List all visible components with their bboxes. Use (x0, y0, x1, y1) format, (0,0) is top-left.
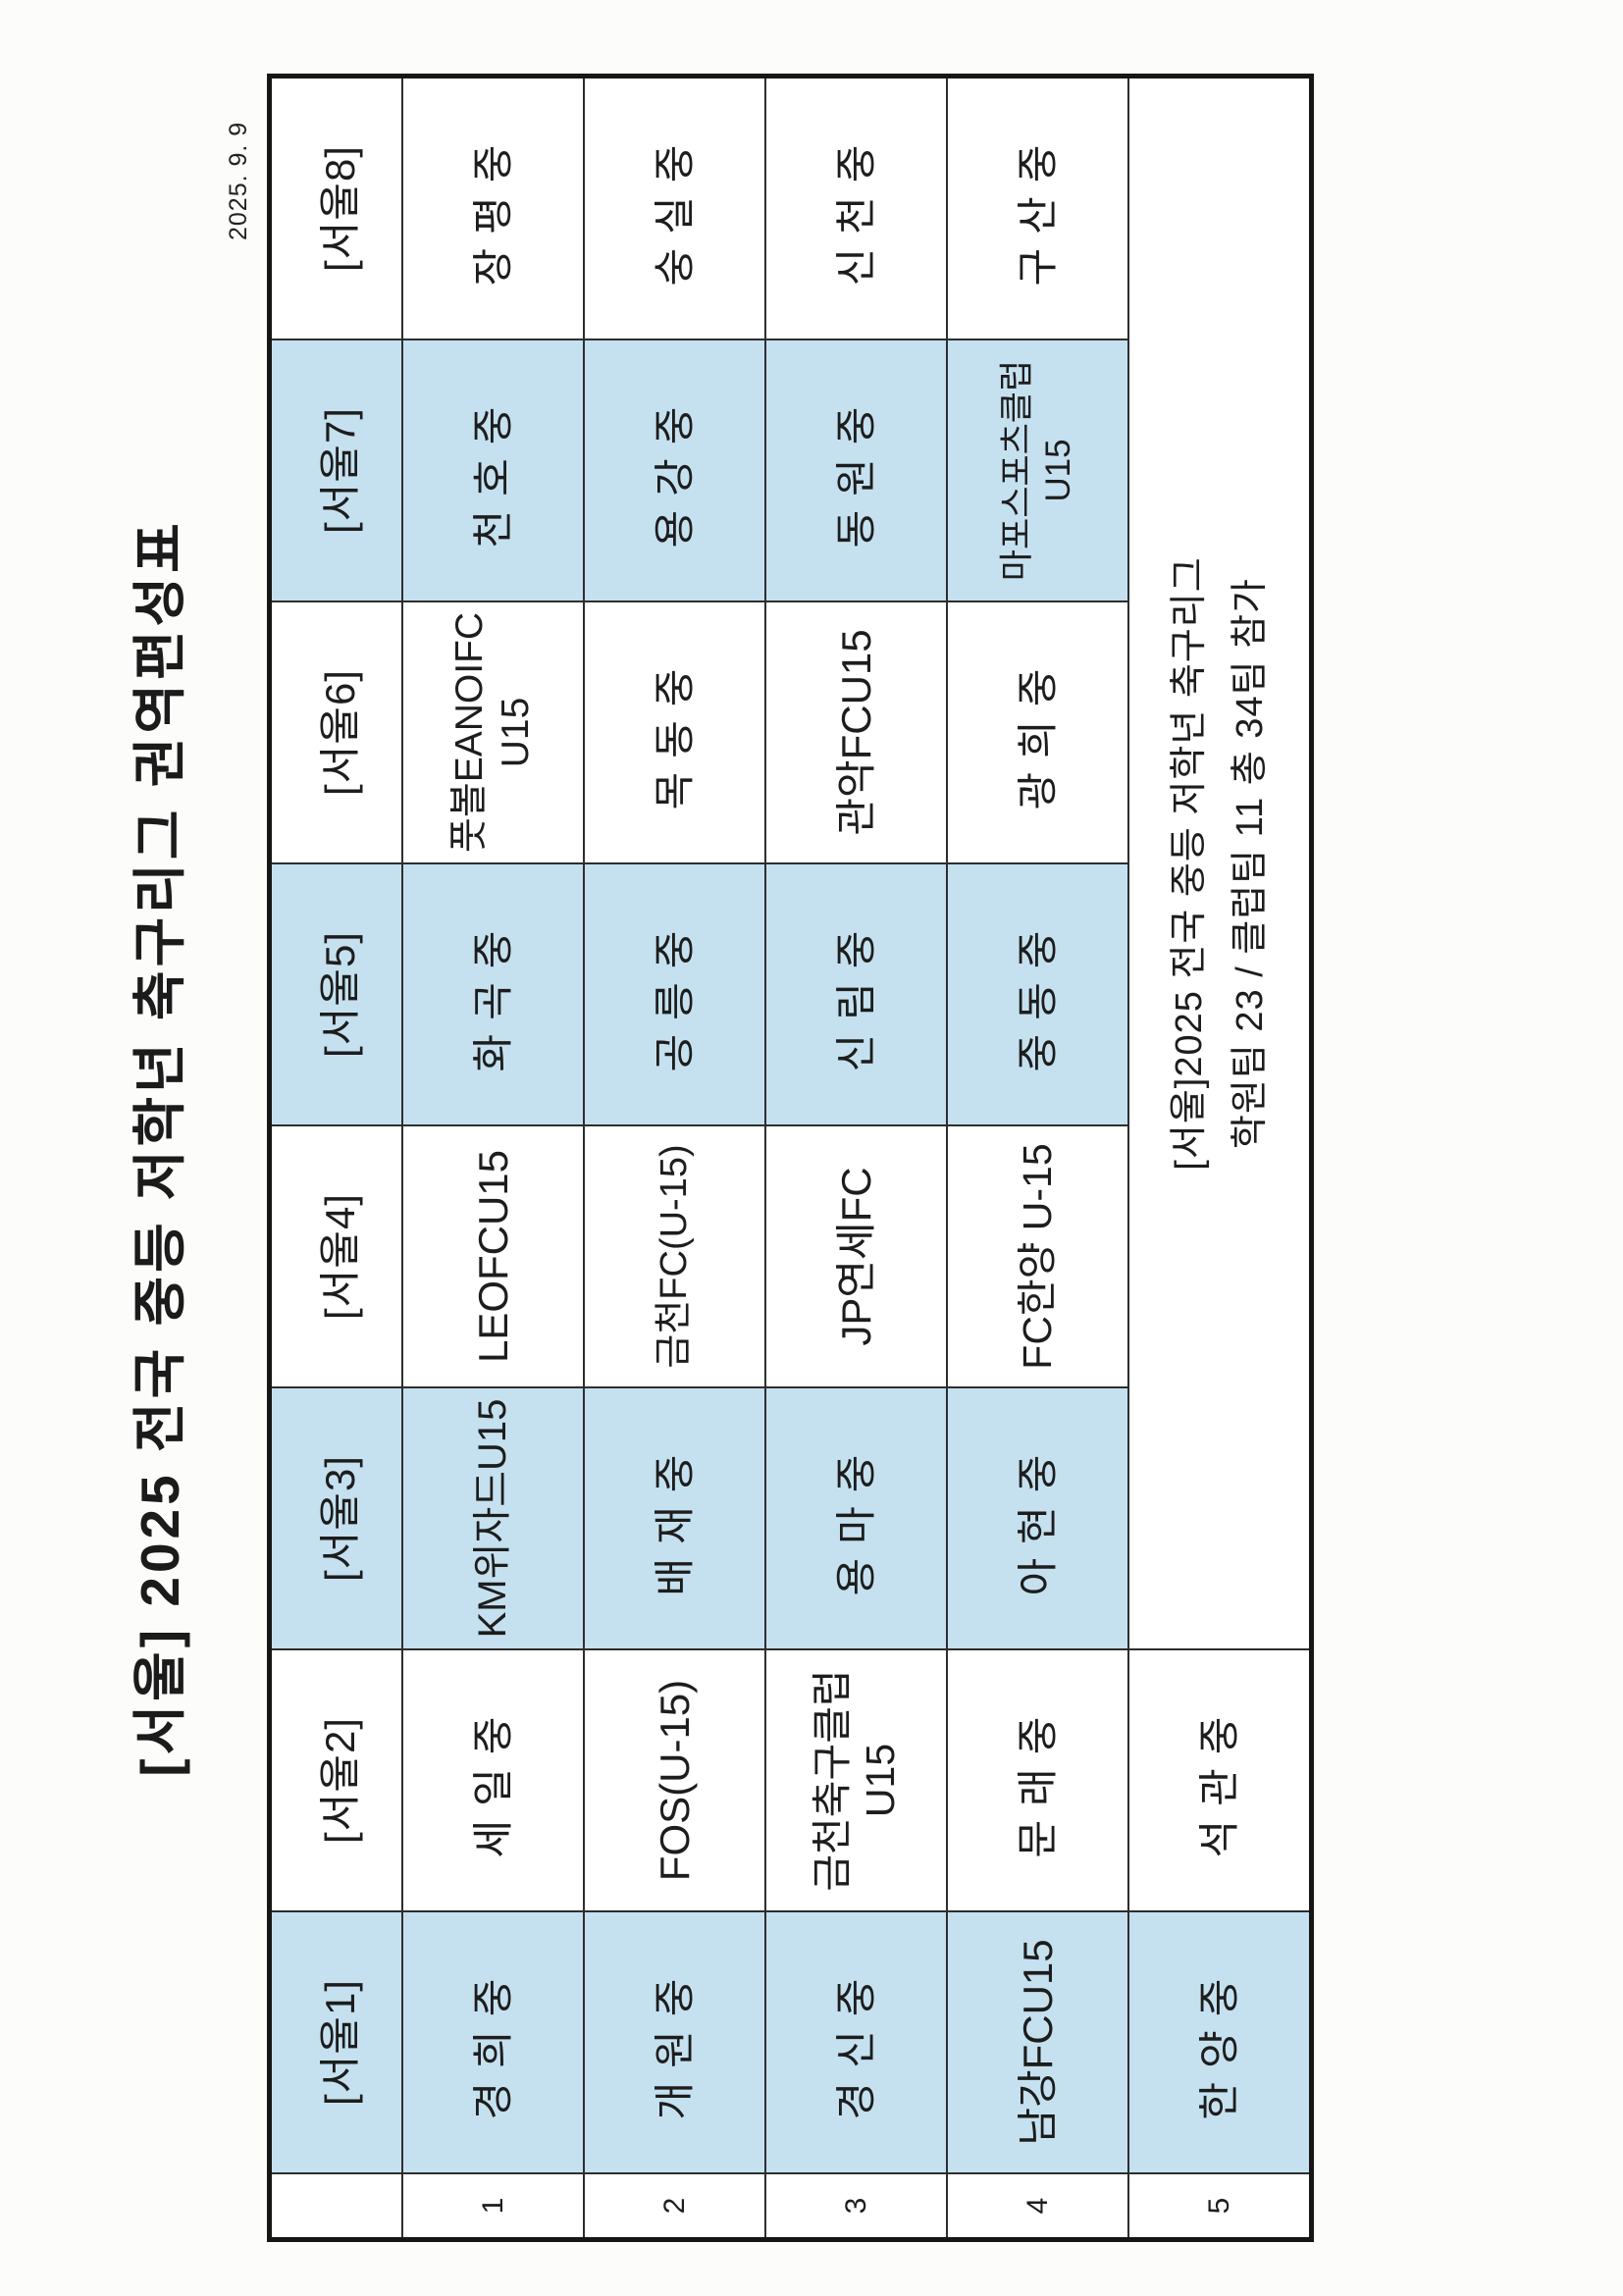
group-header-1: [서울1] (272, 1912, 401, 2172)
team-cell: 중동중 (948, 864, 1127, 1124)
cell-text: 남강FCU15 (1014, 1939, 1063, 2145)
team-cell: 동원중 (766, 340, 946, 600)
team-cell: 광희중 (948, 602, 1127, 862)
cell-text: U15 (494, 698, 539, 768)
cell-text: U15 (857, 1744, 904, 1817)
cell-text: 한양중 (1195, 1965, 1244, 2120)
team-cell: 금천FC(U-15) (585, 1126, 764, 1386)
team-cell: FOS(U-15) (585, 1650, 764, 1910)
cell-text: LEOFCU15 (469, 1150, 518, 1363)
team-cell: 숭실중 (585, 78, 764, 339)
team-cell: 구산중 (948, 78, 1127, 339)
team-cell: 석관중 (1129, 1650, 1309, 1910)
cell-text: 천호중 (469, 393, 518, 548)
group-header-5: [서울5] (272, 864, 401, 1124)
team-cell: 세일중 (403, 1650, 583, 1910)
cell-text: 금천축구클럽 (809, 1669, 856, 1891)
team-cell: 마포스포츠클럽U15 (948, 340, 1127, 600)
team-cell: 신천중 (766, 78, 946, 339)
team-cell: 장평중 (403, 78, 583, 339)
cell-text: 신림중 (832, 917, 881, 1072)
cell-text: 목동중 (651, 655, 700, 810)
team-cell: 경희중 (403, 1912, 583, 2172)
note-text-line: [서울]2025 전국 중등 저학년 축구리그 (1159, 556, 1220, 1170)
cell-text: 마포스포츠클럽 (997, 360, 1037, 581)
cell-text: 경신중 (832, 1965, 881, 2120)
page-title: [서울] 2025 전국 중등 저학년 축구리그 권역편성표 (116, 0, 194, 2296)
team-cell: 개원중 (585, 1912, 764, 2172)
cell-text: 석관중 (1195, 1703, 1244, 1858)
team-cell: 금천축구클럽U15 (766, 1650, 946, 1910)
team-cell: 배재중 (585, 1388, 764, 1648)
cell-text: 경희중 (469, 1965, 518, 2120)
group-header-8: [서울8] (272, 78, 401, 339)
row-number-cell: 2 (585, 2174, 764, 2237)
team-cell: 아현중 (948, 1388, 1127, 1648)
cell-text: 용마중 (832, 1441, 881, 1596)
team-cell: 목동중 (585, 602, 764, 862)
corner-cell (272, 2174, 401, 2237)
team-cell: 관악FCU15 (766, 602, 946, 862)
team-cell: 용마중 (766, 1388, 946, 1648)
team-cell: 한양중 (1129, 1912, 1309, 2172)
group-header-7: [서울7] (272, 340, 401, 600)
group-header-2: [서울2] (272, 1650, 401, 1910)
cell-text: 화곡중 (469, 917, 518, 1072)
group-header-4: [서울4] (272, 1126, 401, 1386)
team-cell: JP연세FC (766, 1126, 946, 1386)
team-cell: 경신중 (766, 1912, 946, 2172)
cell-text: 중동중 (1014, 917, 1063, 1072)
team-cell: 문래중 (948, 1650, 1127, 1910)
team-cell: 남강FCU15 (948, 1912, 1127, 2172)
cell-text: 용강중 (651, 393, 700, 548)
team-cell: 풋볼EANOIFCU15 (403, 602, 583, 862)
date-label: 2025. 9. 9 (225, 25, 253, 240)
team-cell: 공릉중 (585, 864, 764, 1124)
cell-text: 개원중 (651, 1965, 700, 2120)
cell-text: 장평중 (469, 131, 518, 287)
note-text-line: 학원팀 23 / 클럽팀 11 총 34팀 참가 (1220, 578, 1281, 1149)
cell-text: 공릉중 (651, 917, 700, 1072)
cell-text: 신천중 (832, 131, 881, 287)
row-number-cell: 4 (948, 2174, 1127, 2237)
cell-text: FOS(U-15) (651, 1680, 700, 1881)
team-cell: KM위자드U15 (403, 1388, 583, 1648)
row-number-cell: 5 (1129, 2174, 1309, 2237)
cell-text: FC한양 U-15 (1014, 1143, 1061, 1369)
team-cell: LEOFCU15 (403, 1126, 583, 1386)
scanned-document-page: [서울] 2025 전국 중등 저학년 축구리그 권역편성표 2025. 9. … (0, 0, 1623, 2296)
cell-text: 아현중 (1014, 1441, 1063, 1596)
cell-text: 배재중 (651, 1441, 700, 1596)
note-cell: [서울]2025 전국 중등 저학년 축구리그학원팀 23 / 클럽팀 11 총… (1129, 78, 1309, 1648)
team-cell: 신림중 (766, 864, 946, 1124)
cell-text: 숭실중 (651, 131, 700, 287)
rotated-landscape-sheet: [서울] 2025 전국 중등 저학년 축구리그 권역편성표 2025. 9. … (0, 0, 1623, 2296)
cell-text: 구산중 (1014, 131, 1063, 287)
cell-text: 광희중 (1014, 655, 1063, 810)
group-header-3: [서울3] (272, 1388, 401, 1648)
league-assignment-table: [서울1]경희중개원중경신중남강FCU15한양중[서울2]세일중FOS(U-15… (267, 74, 1314, 2242)
cell-text: U15 (1038, 439, 1078, 501)
team-cell: 용강중 (585, 340, 764, 600)
team-cell: 천호중 (403, 340, 583, 600)
cell-text: 관악FCU15 (832, 629, 881, 835)
cell-text: 풋볼EANOIFC (447, 612, 493, 853)
row-number-cell: 3 (766, 2174, 946, 2237)
group-header-6: [서울6] (272, 602, 401, 862)
cell-text: 금천FC(U-15) (653, 1144, 697, 1368)
cell-text: KM위자드U15 (470, 1399, 516, 1639)
cell-text: 문래중 (1014, 1703, 1063, 1858)
team-cell: FC한양 U-15 (948, 1126, 1127, 1386)
cell-text: 동원중 (832, 393, 881, 548)
row-number-cell: 1 (403, 2174, 583, 2237)
cell-text: 세일중 (469, 1703, 518, 1858)
team-cell: 화곡중 (403, 864, 583, 1124)
cell-text: JP연세FC (832, 1167, 881, 1345)
